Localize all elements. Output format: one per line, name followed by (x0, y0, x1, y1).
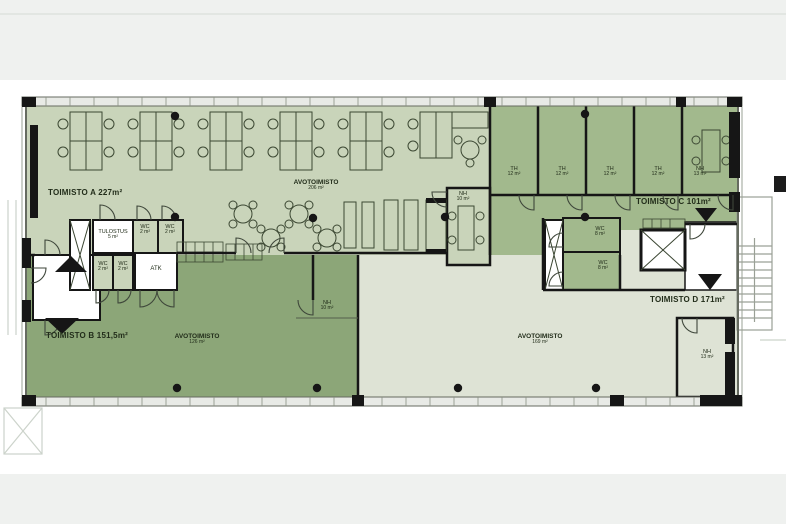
room-label-nh-10-upper: NH10 m² (457, 191, 470, 203)
room-label-th-2: TH12 m² (556, 166, 569, 178)
room-label-atk: ATK (150, 266, 161, 273)
room-label-wc-2b: WC2 m² (165, 224, 175, 236)
wc-8a-area: 8 m² (595, 232, 605, 238)
room-label-wc-8a: WC8 m² (595, 226, 605, 238)
room-label-th-3: TH12 m² (604, 166, 617, 178)
room-label-toimisto-a: TOIMISTO A 227m² (48, 188, 122, 197)
th-2-area: 12 m² (556, 172, 569, 178)
wc-2c-area: 2 m² (98, 267, 108, 273)
room-label-nh-13-top: NH13 m² (694, 166, 707, 178)
room-label-toimisto-d: TOIMISTO D 171m² (650, 295, 725, 304)
room-label-nh-10-lower: NH10 m² (321, 300, 334, 312)
wc-8b-area: 8 m² (598, 266, 608, 272)
th-1-area: 12 m² (508, 172, 521, 178)
room-label-avotoimisto-126: AVOTOIMISTO 126 m² (175, 333, 220, 346)
th-3-area: 12 m² (604, 172, 617, 178)
nh-10-lower-area: 10 m² (321, 306, 334, 312)
avotoimisto-126-area: 126 m² (175, 340, 220, 346)
floor-plan-page: TOIMISTO A 227m² TOIMISTO B 151,5m² TOIM… (0, 0, 786, 524)
nh-13-top-area: 13 m² (694, 172, 707, 178)
nh-13-bottom-area: 13 m² (701, 355, 714, 361)
wc-2a-area: 2 m² (140, 230, 150, 236)
room-label-wc-2d: WC2 m² (118, 261, 128, 273)
room-wc-8a (563, 218, 620, 252)
nh-10-upper-area: 10 m² (457, 197, 470, 203)
th-4-area: 12 m² (652, 172, 665, 178)
room-label-wc-8b: WC8 m² (598, 260, 608, 272)
avotoimisto-169-area: 169 m² (518, 340, 563, 346)
room-label-wc-2c: WC2 m² (98, 261, 108, 273)
room-wc-8b (563, 252, 620, 290)
room-label-wc-2a: WC2 m² (140, 224, 150, 236)
room-label-nh-13-bottom: NH13 m² (701, 349, 714, 361)
site-context-block (774, 176, 786, 192)
room-label-tulostus: TULOSTUS 5 m² (98, 229, 127, 241)
zone-toimisto-c-corridor (490, 230, 543, 255)
room-label-avotoimisto-206: AVOTOIMISTO 206 m² (294, 179, 339, 192)
wc-2b-area: 2 m² (165, 230, 175, 236)
room-label-th-1: TH12 m² (508, 166, 521, 178)
tulostus-area: 5 m² (98, 235, 127, 241)
avotoimisto-206-area: 206 m² (294, 186, 339, 192)
room-label-th-4: TH12 m² (652, 166, 665, 178)
room-label-toimisto-b: TOIMISTO B 151,5m² (46, 331, 128, 340)
room-label-toimisto-c: TOIMISTO C 101m² (636, 197, 711, 206)
wc-2d-area: 2 m² (118, 267, 128, 273)
room-label-avotoimisto-169: AVOTOIMISTO 169 m² (518, 333, 563, 346)
